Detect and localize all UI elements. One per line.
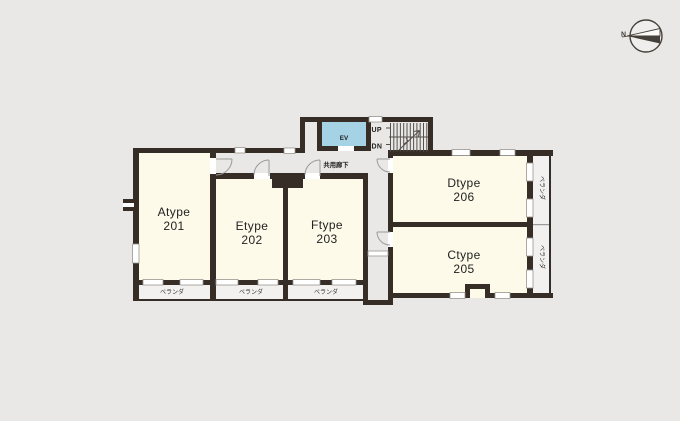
compass-north-label: N bbox=[621, 32, 626, 39]
floorplan-canvas: UP DN 共用廊下 EV ベランダ ベランダ ベランダ ベランダ ベランダ A… bbox=[0, 0, 680, 421]
veranda-label-atype: ベランダ bbox=[160, 288, 184, 296]
room-etype-type: Etype bbox=[236, 219, 269, 233]
room-ctype-number: 205 bbox=[453, 262, 474, 276]
room-ftype-number: 203 bbox=[316, 232, 337, 246]
stairs-up-label: UP bbox=[372, 127, 382, 134]
veranda-label-dtype: ベランダ bbox=[538, 176, 546, 200]
veranda-right-divider bbox=[533, 224, 549, 225]
corridor-label: 共用廊下 bbox=[323, 160, 349, 169]
veranda-label-ftype: ベランダ bbox=[314, 288, 338, 296]
room-atype-number: 201 bbox=[163, 219, 184, 233]
wall-notch-slot bbox=[123, 203, 134, 207]
elevator-label: EV bbox=[340, 135, 349, 142]
wall-notch-bottom bbox=[470, 289, 485, 298]
room-ctype-type: Ctype bbox=[447, 248, 480, 262]
veranda-label-etype: ベランダ bbox=[239, 288, 263, 296]
room-atype-type: Atype bbox=[158, 205, 191, 219]
room-dtype-type: Dtype bbox=[447, 176, 480, 190]
elevator-shaft bbox=[322, 122, 366, 146]
room-ftype-type: Ftype bbox=[311, 218, 343, 232]
floorplan-page: UP DN 共用廊下 EV ベランダ ベランダ ベランダ ベランダ ベランダ A… bbox=[0, 0, 680, 421]
stairs-down-label: DN bbox=[372, 144, 383, 151]
room-etype-number: 202 bbox=[241, 233, 262, 247]
room-dtype-number: 206 bbox=[453, 190, 474, 204]
veranda-label-ctype: ベランダ bbox=[538, 245, 546, 269]
